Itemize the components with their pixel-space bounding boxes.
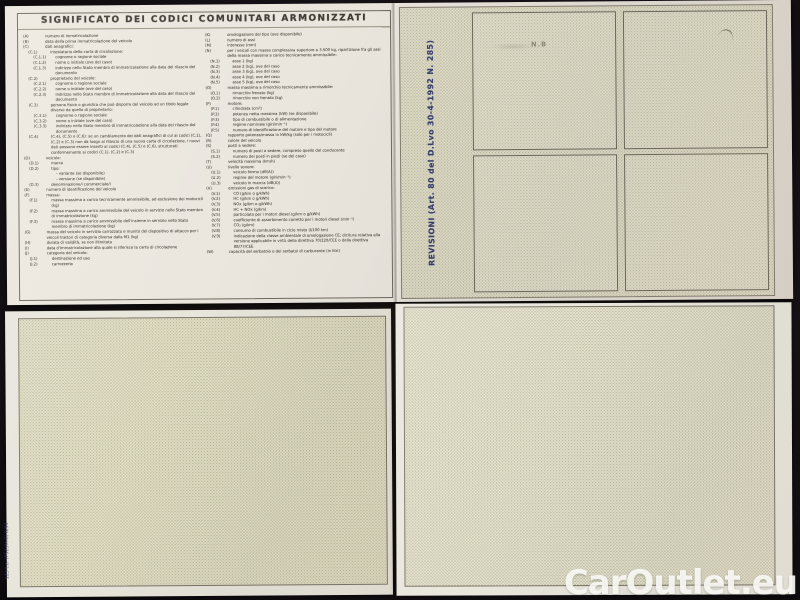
legend-item-code: (F.1) — [29, 198, 51, 203]
stamp-box-1: N.B — [472, 11, 617, 150]
watermark: CarOutlet.eu — [564, 563, 797, 600]
revisioni-panel: REVISIONI (Art. 80 del D.Lvo 30-4-1992 N… — [399, 4, 775, 299]
blank-pattern-panel-left — [18, 316, 388, 588]
registration-document-top-sheet: SIGNIFICATO DEI CODICI COMUNITARI ARMONI… — [5, 0, 793, 305]
legend-item-code: (G) — [25, 230, 47, 235]
document-photo: SIGNIFICATO DEI CODICI COMUNITARI ARMONI… — [0, 0, 800, 600]
legend-item-text: indicazione della classe ambientale di o… — [234, 232, 389, 249]
legend-item-code: (J.2) — [30, 261, 52, 266]
stamp-grid: N.B — [472, 10, 769, 292]
legend-columns: (A)numero di immatricolazione(B)data del… — [23, 31, 389, 297]
legend-item: (C.4)(C.4), (C.5) e (C.6): se un cambiam… — [29, 133, 206, 156]
legend-item-code: (V.9) — [212, 234, 234, 239]
legend-title: SIGNIFICATO DEI CODICI COMUNITARI ARMONI… — [18, 11, 390, 30]
stamp-box-2 — [623, 10, 768, 149]
legend-item: (J.2)carrozzeria — [30, 260, 207, 267]
blank-sheet-bottom-left: 123 t.o. (P523M.C) 8/94 — [5, 309, 393, 598]
legend-item-code: (C.3) — [29, 103, 51, 108]
legend-item-code: (F.2) — [29, 209, 51, 214]
legend-item-text: carrozzeria — [52, 260, 207, 267]
legend-item-code: (W) — [207, 250, 229, 255]
faded-stamp-smudge — [491, 43, 535, 50]
legend-item-text: (C.4), (C.5) e (C.6): se un cambiamento … — [51, 133, 206, 155]
legend-item: (W)capacità del serbatoio o dei serbatoi… — [207, 248, 389, 255]
legend-item-text: capacità del serbatoio o dei serbatoi di… — [229, 248, 389, 255]
legend-right-column: (K)omologazione del tipo (ove disponibil… — [205, 31, 389, 295]
print-code: 123 t.o. (P523M.C) 8/94 — [4, 522, 10, 579]
legend-item-code: (C.3.3) — [34, 124, 56, 129]
stamp-box-faint-mark: N.B — [531, 41, 547, 49]
fold-crease — [391, 3, 399, 302]
legend-item: (V.9)indicazione della classe ambientale… — [212, 232, 389, 249]
stamp-box-3 — [473, 154, 618, 293]
blank-sheet-bottom-right — [395, 302, 792, 596]
blank-pattern-panel-right — [403, 305, 775, 586]
pen-mark — [718, 27, 736, 42]
stamp-box-4 — [624, 153, 769, 292]
legend-box: SIGNIFICATO DEI CODICI COMUNITARI ARMONI… — [17, 10, 393, 301]
legend-item-code: (C.4) — [29, 134, 51, 139]
legend-left-column: (A)numero di immatricolazione(B)data del… — [23, 33, 207, 297]
legend-item-code: (F.3) — [30, 219, 52, 224]
legend-item-code: (C.2.3) — [34, 92, 56, 97]
legend-item-code: (D.2) — [29, 166, 51, 171]
legend-item-code: (C.1.3) — [33, 65, 55, 70]
legend-item-code: (N) — [205, 48, 227, 53]
revisioni-label: REVISIONI (Art. 80 del D.Lvo 30-4-1992 N… — [425, 40, 436, 266]
